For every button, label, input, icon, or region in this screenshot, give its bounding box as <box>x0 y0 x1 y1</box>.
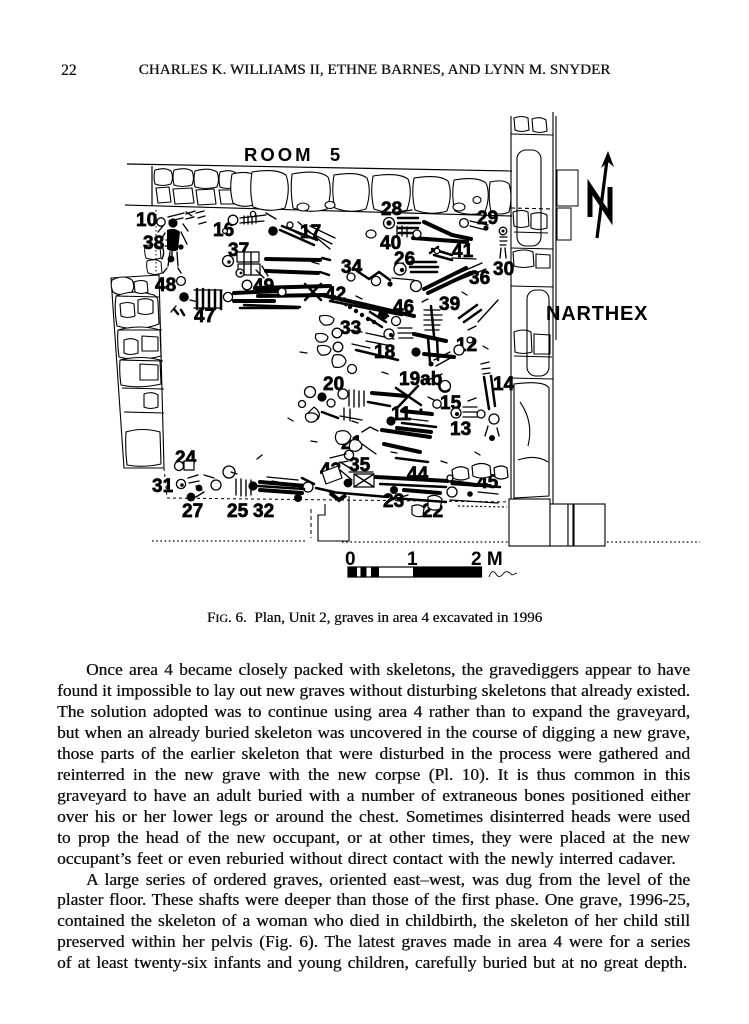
svg-text:31: 31 <box>152 476 174 497</box>
svg-text:29: 29 <box>477 208 498 229</box>
svg-text:30: 30 <box>493 259 514 280</box>
svg-text:44: 44 <box>407 464 429 485</box>
svg-text:39: 39 <box>439 294 460 315</box>
svg-text:27: 27 <box>182 501 203 522</box>
svg-text:NARTHEX: NARTHEX <box>546 303 648 325</box>
svg-text:14: 14 <box>493 374 515 395</box>
svg-text:10: 10 <box>136 210 157 231</box>
svg-text:32: 32 <box>253 501 274 522</box>
svg-text:23: 23 <box>383 491 404 512</box>
svg-text:ROOM 5: ROOM 5 <box>244 144 343 165</box>
svg-text:19ab: 19ab <box>399 369 442 390</box>
svg-text:33: 33 <box>340 318 361 339</box>
svg-text:48: 48 <box>155 275 176 296</box>
svg-text:13: 13 <box>450 419 471 440</box>
svg-text:25: 25 <box>227 501 249 522</box>
